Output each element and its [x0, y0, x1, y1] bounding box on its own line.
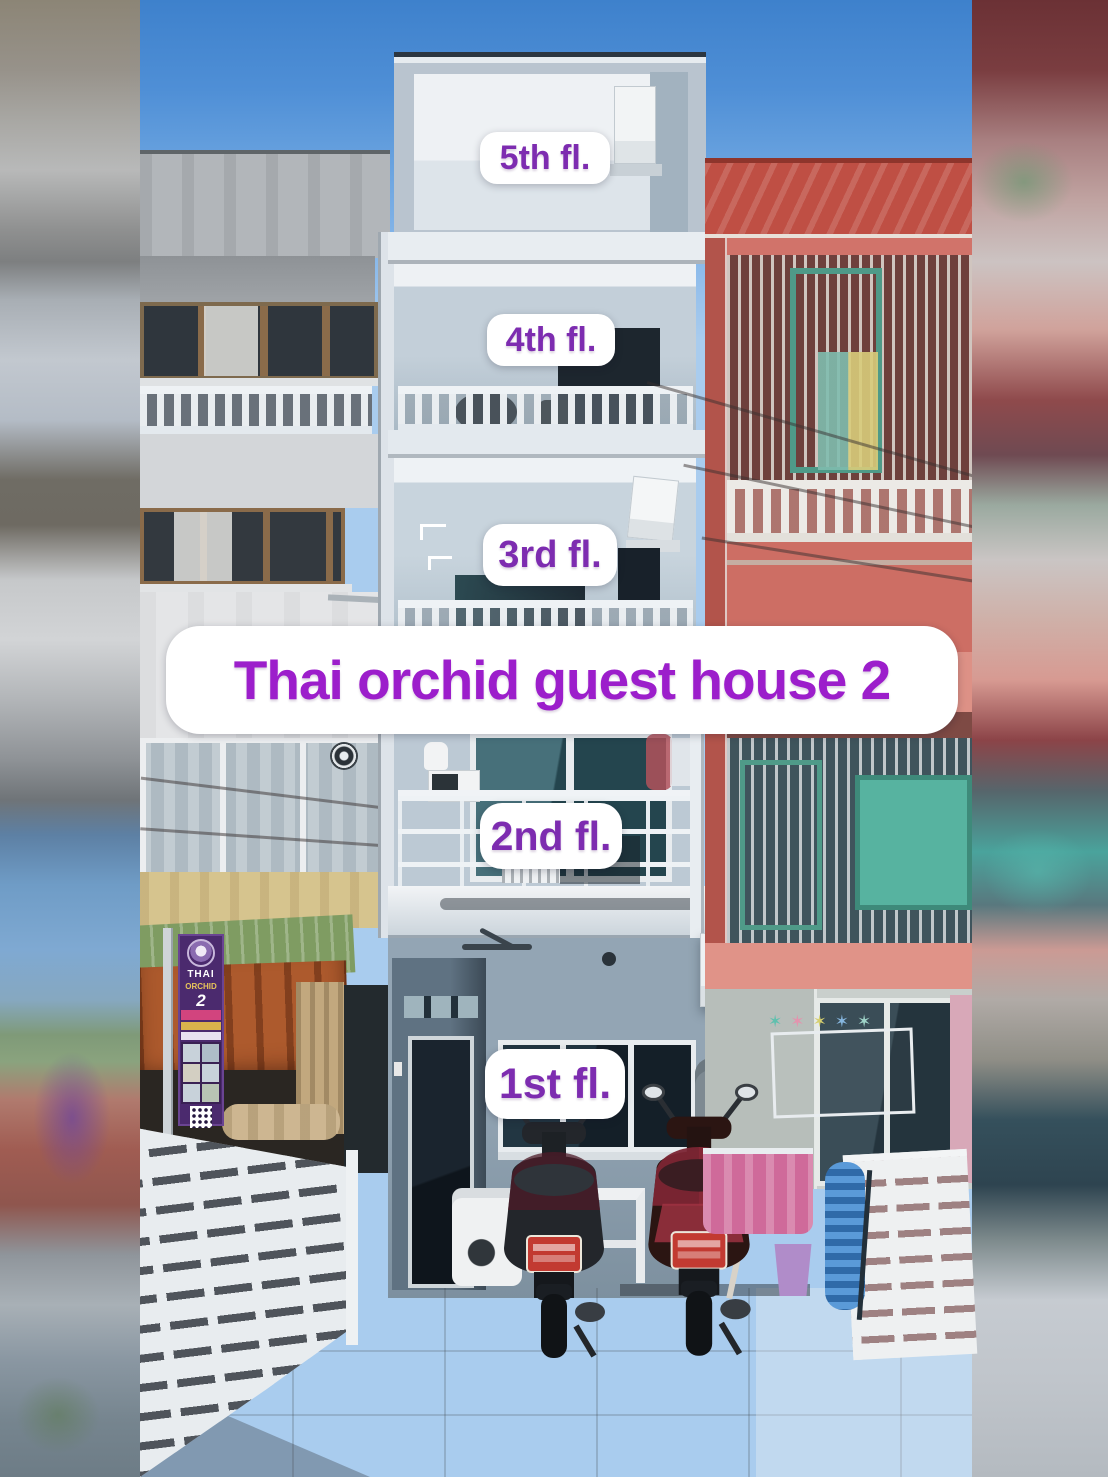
floor-label-1st: 1st fl. — [485, 1049, 625, 1119]
floor-label-2nd: 2nd fl. — [480, 803, 622, 869]
guest-house-photo: THAI ORCHID 2 — [0, 0, 1108, 1477]
scooter-left — [478, 1088, 630, 1366]
red-metal-roof — [705, 158, 972, 238]
balcony-panel — [818, 352, 878, 470]
banner-name-line1: THAI — [187, 969, 214, 980]
floor-label-5th: 5th fl. — [480, 132, 610, 184]
blurred-edge-left — [0, 0, 140, 1477]
qr-code — [190, 1106, 212, 1128]
banner-photo-grid — [181, 1042, 221, 1104]
banner-band — [181, 1022, 221, 1030]
banner-name-line2: ORCHID — [185, 982, 217, 991]
guesthouse-banner: THAI ORCHID 2 — [178, 934, 224, 1126]
blurred-edge-right — [972, 0, 1108, 1477]
banner-band — [181, 1010, 221, 1020]
pink-towel — [703, 1148, 813, 1234]
banner-band — [181, 1032, 221, 1040]
teal-gate-panel — [855, 775, 972, 910]
corner-pilaster — [705, 238, 727, 948]
floor-label-4th: 4th fl. — [487, 314, 615, 366]
floor-label-3rd: 3rd fl. — [483, 524, 617, 586]
clothes-clips: ✶✶✶ ✶✶ — [768, 1012, 928, 1038]
orchid-logo-icon — [187, 939, 215, 967]
photo-title-sticker: Thai orchid guest house 2 — [166, 626, 958, 734]
balcony-balustrade — [727, 480, 972, 542]
teal-cage-frame — [740, 760, 822, 930]
fence-post — [346, 1150, 358, 1345]
banner-number: 2 — [196, 993, 205, 1008]
pink-wall-band — [705, 943, 972, 989]
clothes-drying-rack — [771, 1028, 916, 1119]
